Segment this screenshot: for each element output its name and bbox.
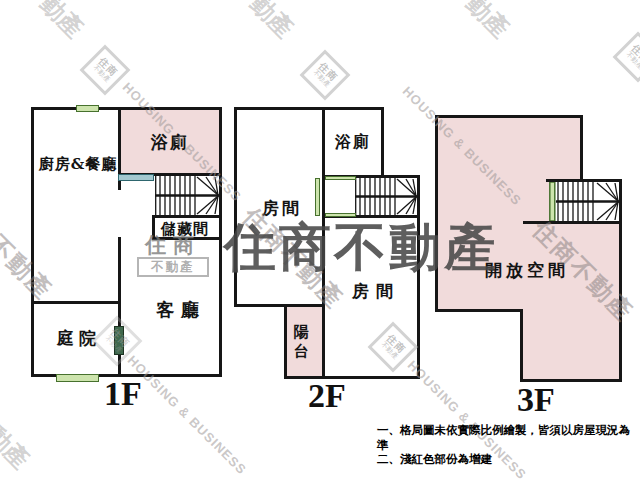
floor-label-1f: 1F [104,375,142,413]
note-line-2: 二、淺紅色部份為增建 [377,452,639,467]
floor-plan-canvas: 廚房&餐廳 浴廁 儲藏間 客廳 庭院 1F 房間 浴廁 房間 陽台 2F 開放空… [0,0,640,480]
room-label-bath-2f: 浴廁 [335,133,371,151]
door-icon [315,178,320,216]
door-icon [118,174,154,181]
room-label-balcony-2f: 陽台 [293,323,310,361]
watermark-logo-top: 住商 [137,234,209,255]
walls-3f [435,115,622,382]
door-icon [325,176,356,180]
notes: 一、格局圖未依實際比例繪製，皆須以房屋現況為準 二、淺紅色部份為增建 [377,423,639,467]
floor-label-2f: 2F [308,377,346,415]
door-icon [325,213,356,217]
room-label-living-1f: 客廳 [156,300,206,320]
room-label-room-a-2f: 房間 [262,199,302,218]
watermark-logo-bottom: 不動產 [137,257,209,277]
watermark-logo: 住商 不動產 [137,234,209,277]
room-label-open-space-3f: 開放空間 [485,261,569,280]
room-label-kitchen-dining: 廚房&餐廳 [39,156,118,173]
room-label-room-b-2f: 房間 [352,282,400,301]
room-label-bath-1f: 浴廁 [151,133,189,152]
note-line-1: 一、格局圖未依實際比例繪製，皆須以房屋現況為準 [377,423,639,452]
floor-label-3f: 3F [517,381,555,419]
window-icon [76,105,99,112]
window-icon [56,374,99,382]
